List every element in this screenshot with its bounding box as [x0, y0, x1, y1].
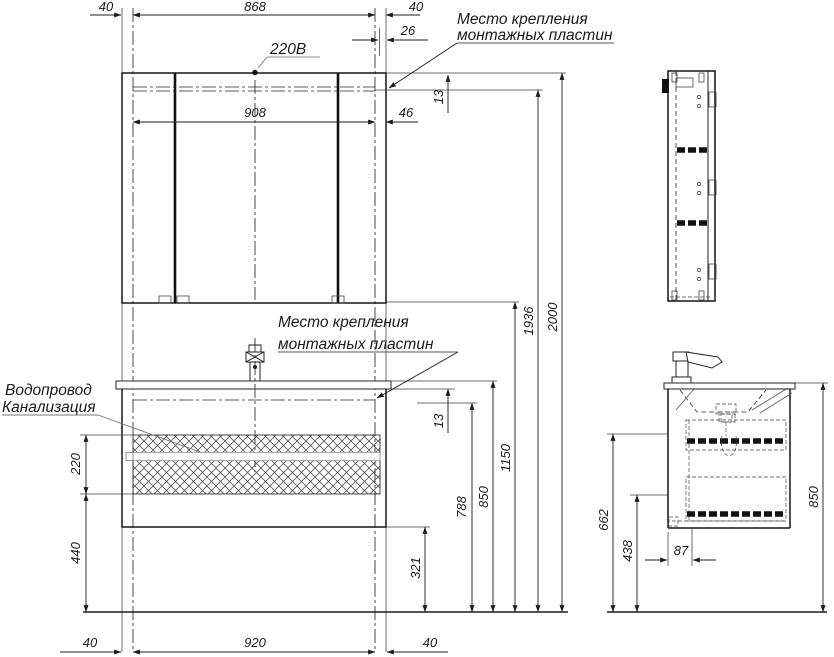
dimension-lines-side: [607, 383, 828, 612]
dim-321: 321: [408, 557, 423, 579]
installation-drawing: 40 868 40 26 908 46 13 13 321 788 850 11…: [0, 0, 834, 657]
worktop-front: [116, 381, 391, 389]
sewerage-label: Канализация: [2, 399, 96, 416]
dim-side-850: 850: [806, 485, 821, 507]
front-view: 40 868 40 26 908 46 13 13 321 788 850 11…: [2, 0, 614, 652]
dim-1150: 1150: [498, 443, 513, 472]
dim-side-438: 438: [620, 539, 635, 561]
dim-1936: 1936: [521, 306, 536, 336]
mount-plates-top-line1: Место крепления: [457, 11, 588, 28]
dim-850: 850: [476, 485, 491, 507]
power-point-dot: [252, 70, 257, 75]
dim-inner-span: 908: [244, 105, 266, 120]
hinge-block: [662, 79, 669, 93]
side-view-vanity: [664, 352, 795, 528]
dim-top-offset-left: 40: [99, 0, 114, 14]
dim-top-span: 868: [244, 0, 266, 14]
dim-440: 440: [68, 541, 83, 563]
annotation-power: 220В: [252, 41, 320, 75]
annotation-plumbing: Водопровод Канализация: [2, 382, 200, 452]
dim-plate-top-gap: 13: [431, 89, 446, 104]
mount-plates-top-line2: монтажных пластин: [457, 27, 613, 44]
faucet-side: [672, 352, 722, 383]
dim-plate-inset: 26: [400, 23, 416, 38]
dim-top-offset-right: 40: [409, 0, 424, 14]
technical-drawing-sheet: 40 868 40 26 908 46 13 13 321 788 850 11…: [0, 0, 834, 657]
dim-788: 788: [454, 495, 469, 517]
dim-bottom-offset-left: 40: [83, 635, 98, 650]
dim-side-87: 87: [674, 543, 689, 558]
mount-plates-mid-line1: Место крепления: [278, 314, 409, 331]
mount-plates-mid-line2: монтажных пластин: [278, 336, 434, 353]
water-supply-label: Водопровод: [5, 382, 92, 399]
dim-bottom-offset-right: 40: [423, 635, 438, 650]
dim-bottom-span: 920: [244, 635, 266, 650]
power-label: 220В: [269, 41, 306, 58]
dimension-lines-front: [60, 15, 562, 652]
siphon: [719, 412, 736, 456]
dim-under-top-gap: 13: [431, 413, 446, 428]
dim-inner-edge: 46: [399, 105, 414, 120]
section-diagonals: [676, 388, 792, 413]
hinge-marks: [697, 95, 700, 280]
dim-220: 220: [68, 452, 83, 475]
side-view-mirror-cabinet: [662, 71, 716, 301]
service-zone-hatch: [133, 435, 380, 494]
dim-side-662: 662: [596, 508, 611, 530]
annotation-mount-plates-top: Место крепления монтажных пластин: [389, 11, 614, 88]
dim-2000: 2000: [545, 302, 560, 333]
